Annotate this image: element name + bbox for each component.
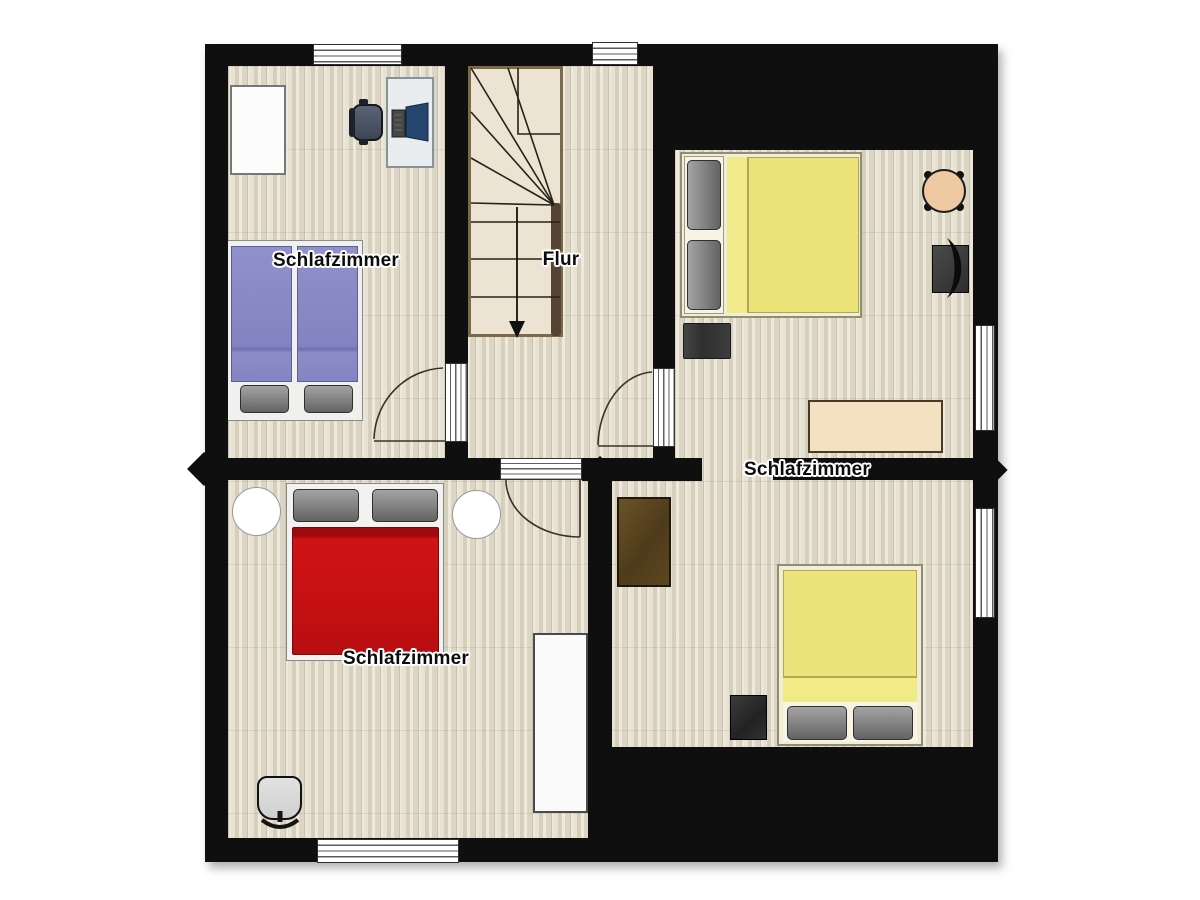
plan-linework [0,0,1200,900]
room-label-hallway: Flur [543,249,580,271]
room-label-bedroom-right: Schlafzimmer [744,459,870,481]
computer-monitor [392,103,428,141]
round-side-table [923,170,965,212]
vanity-chair [947,238,961,298]
office-chair-base [262,811,298,827]
room-label-bedroom-top-left: Schlafzimmer [273,250,399,272]
stairs-down-arrow-icon [509,207,525,338]
room-label-bedroom-bottom-left: Schlafzimmer [343,648,469,670]
door-swing-arcs [374,368,654,537]
floor-plan-canvas: Schlafzimmer Flur Schlafzimmer Schlafzim… [0,0,1200,900]
